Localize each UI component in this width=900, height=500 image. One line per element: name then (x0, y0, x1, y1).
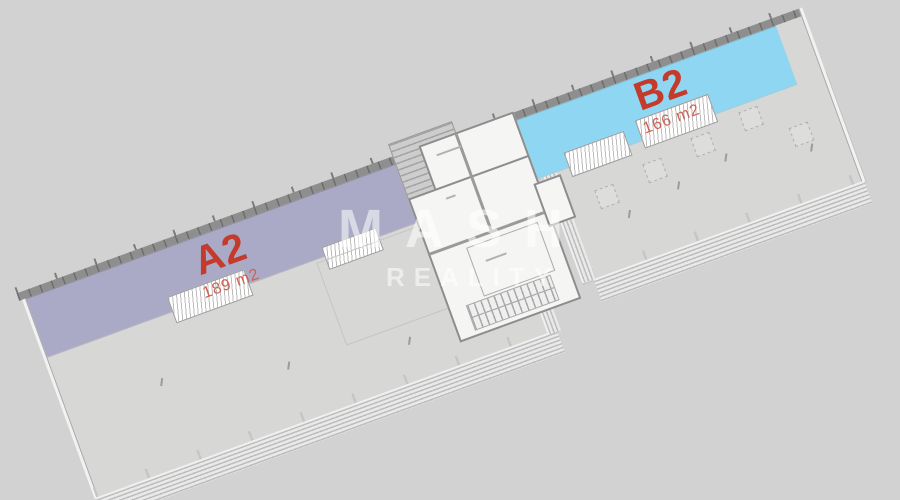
floorplan-screenshot: A2 189 m2 B2 166 m2 MASH REALITY (0, 0, 900, 500)
floor-plan: A2 189 m2 B2 166 m2 (0, 0, 900, 500)
